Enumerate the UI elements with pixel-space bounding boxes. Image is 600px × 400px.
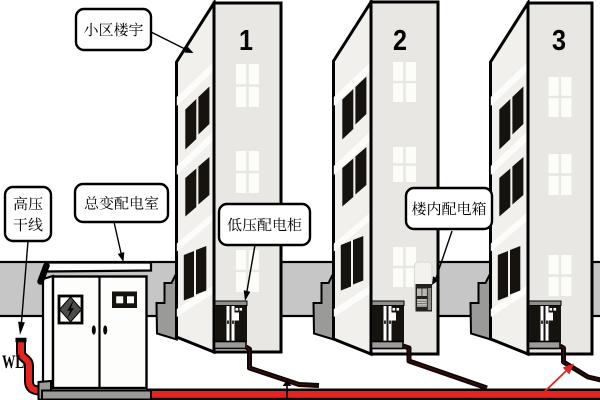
svg-text:1: 1 — [239, 25, 253, 57]
svg-text:3: 3 — [552, 25, 566, 57]
svg-text:2: 2 — [393, 25, 407, 57]
